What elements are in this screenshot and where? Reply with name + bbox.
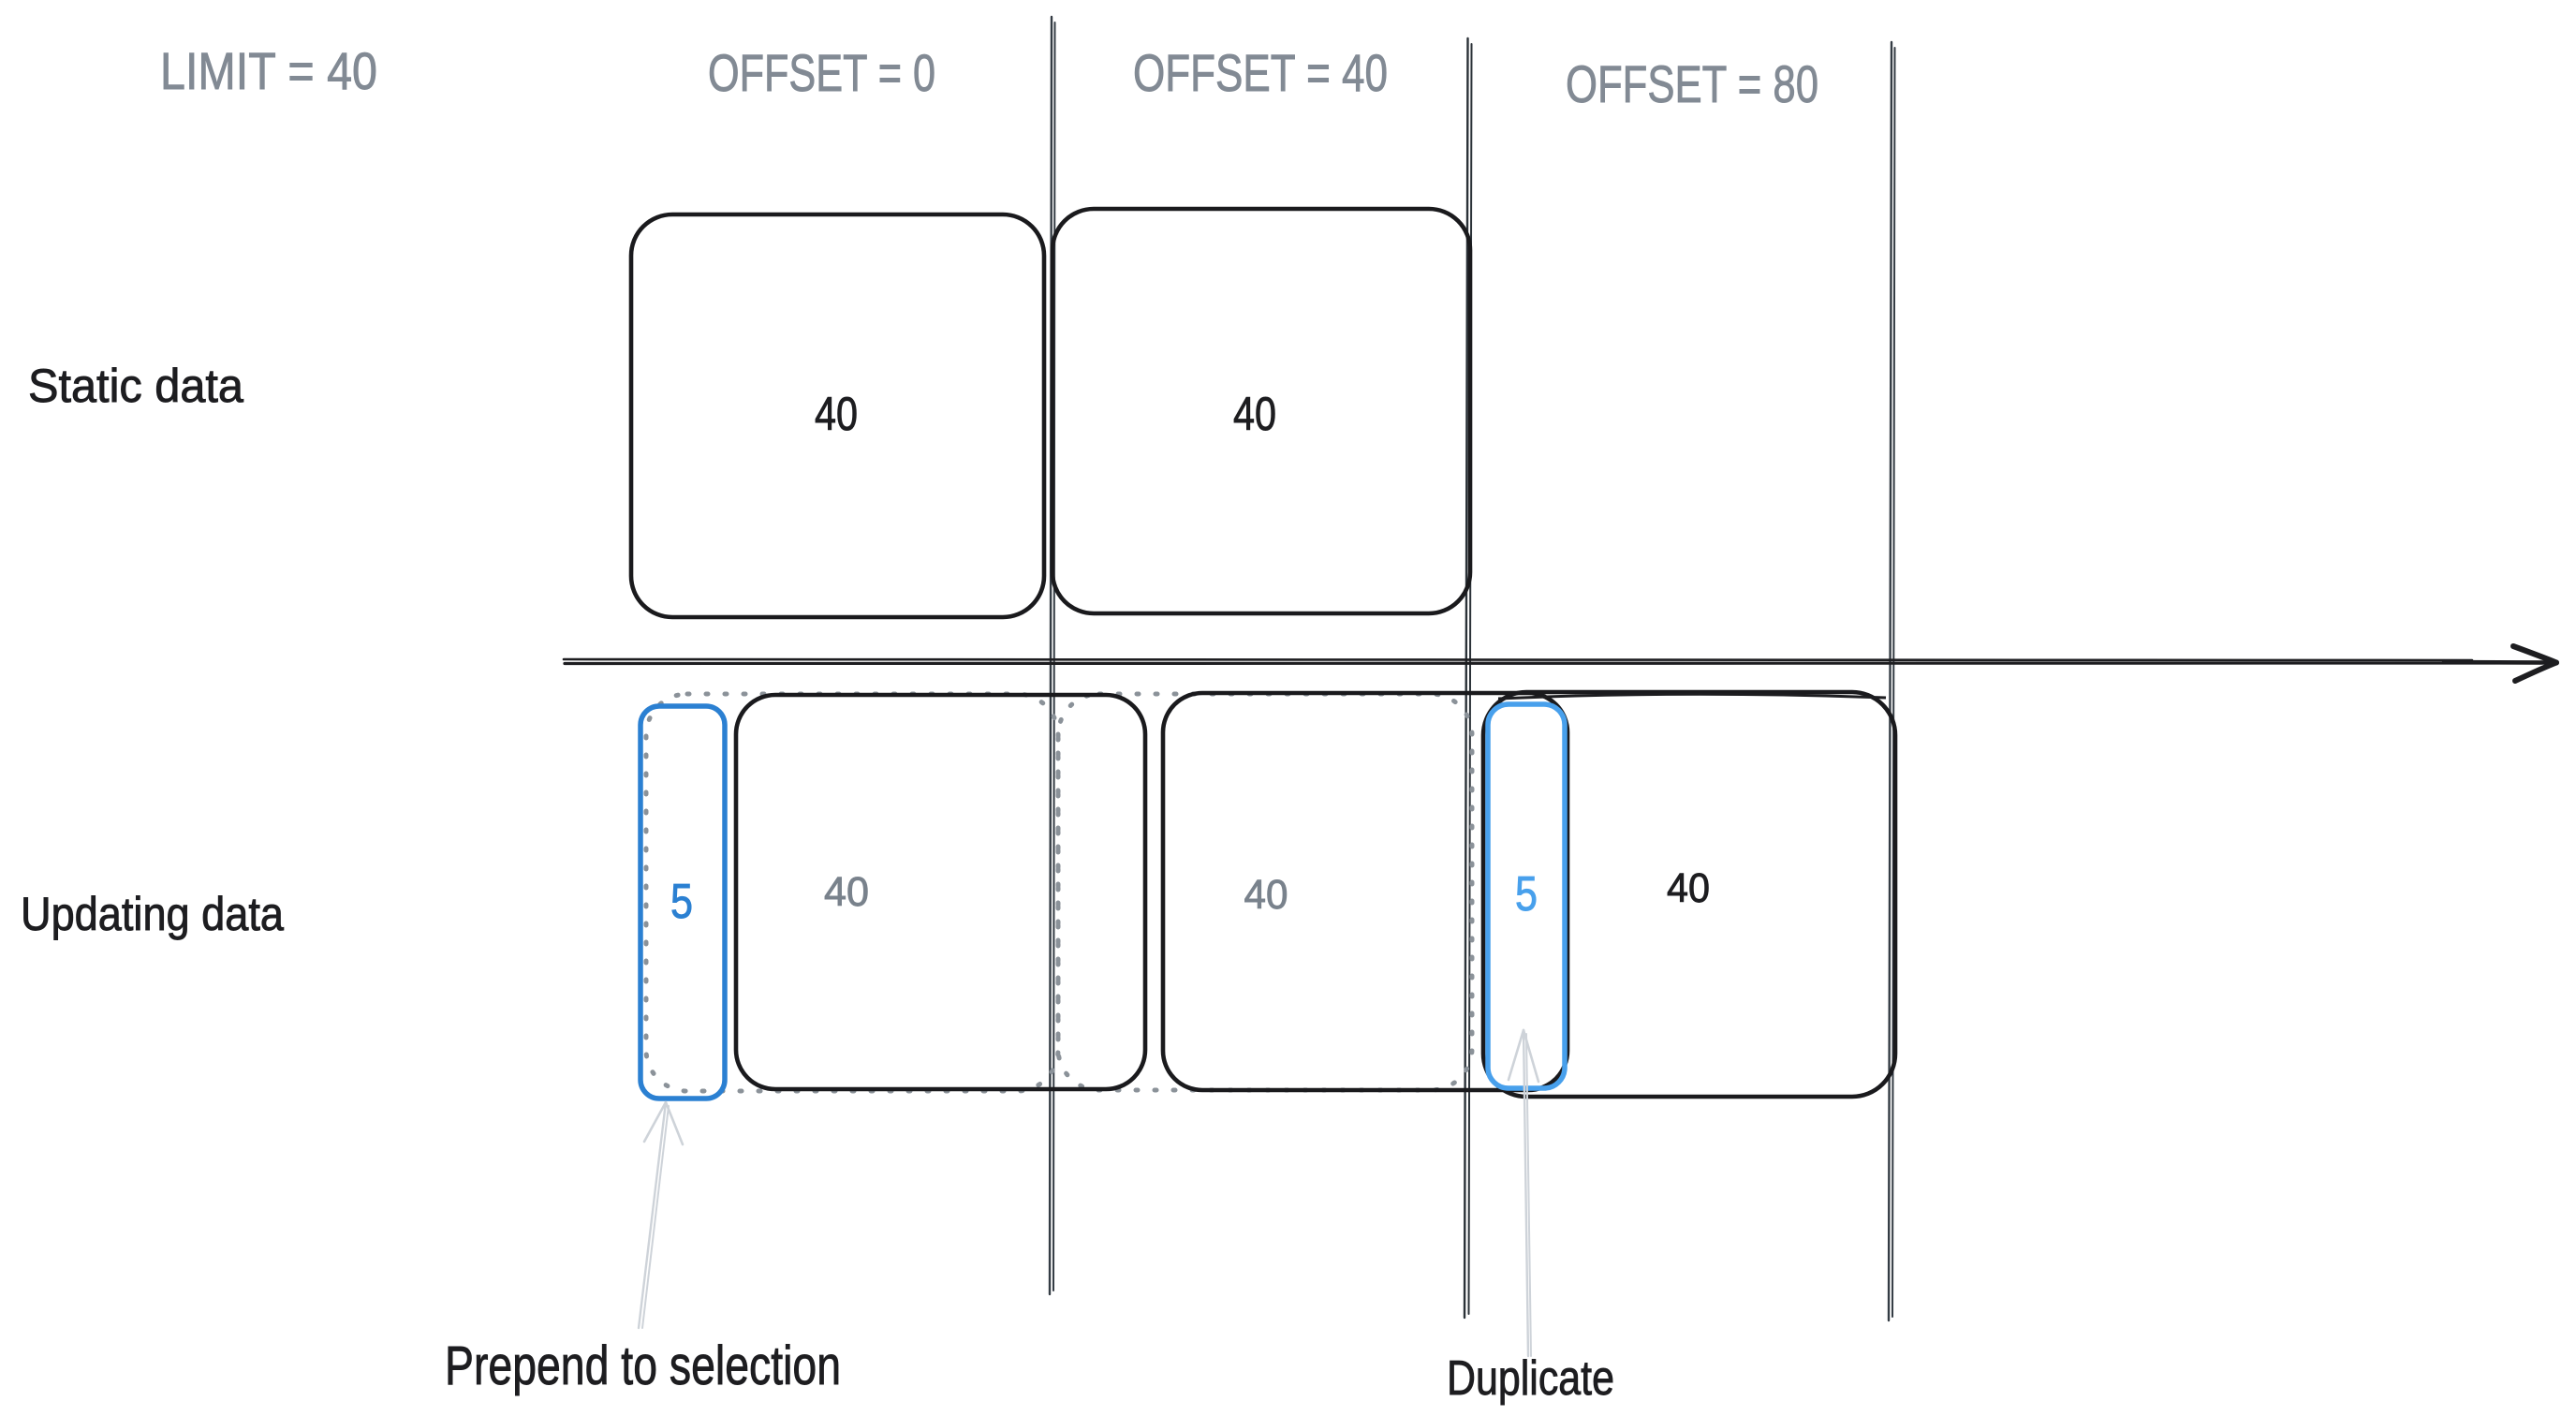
svg-text:OFFSET = 40: OFFSET = 40 [1133, 43, 1388, 102]
svg-text:40: 40 [1244, 872, 1288, 918]
svg-text:40: 40 [815, 388, 858, 440]
svg-text:40: 40 [1667, 865, 1710, 911]
svg-text:Duplicate: Duplicate [1447, 1351, 1614, 1406]
svg-text:40: 40 [1233, 388, 1276, 440]
svg-text:Updating data: Updating data [21, 888, 284, 940]
svg-text:Static data: Static data [28, 360, 243, 412]
svg-text:LIMIT = 40: LIMIT = 40 [160, 41, 377, 100]
svg-text:OFFSET = 80: OFFSET = 80 [1566, 54, 1818, 113]
svg-text:40: 40 [824, 869, 869, 915]
svg-text:Prepend to selection: Prepend to selection [445, 1335, 841, 1396]
svg-text:5: 5 [1515, 867, 1538, 922]
svg-text:5: 5 [670, 875, 693, 929]
svg-text:OFFSET = 0: OFFSET = 0 [708, 43, 935, 102]
